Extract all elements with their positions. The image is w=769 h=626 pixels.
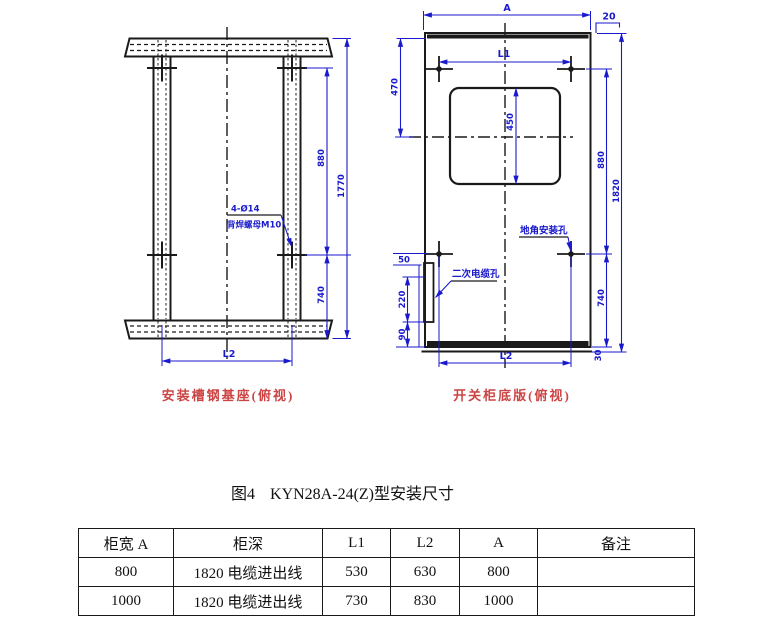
right-drawing-caption: 开关柜底版(俯视) bbox=[453, 388, 571, 403]
left-drawing-caption: 安装槽钢基座(俯视) bbox=[162, 388, 295, 403]
dim-1770: 1770 bbox=[337, 174, 347, 198]
dimension-table: 柜宽 A 柜深 L1 L2 A 备注 800 1820 电缆进出线 530 63… bbox=[78, 528, 695, 616]
dim-470: 470 bbox=[391, 78, 401, 96]
bottom-channel-bar bbox=[125, 321, 332, 339]
dim-A: A bbox=[503, 3, 511, 14]
dim-20: 20 bbox=[602, 12, 616, 23]
cell-remarks-1000 bbox=[538, 587, 695, 616]
figure-caption: 图4KYN28A-24(Z)型安装尺寸 bbox=[231, 480, 454, 504]
dim-L1: L1 bbox=[498, 49, 511, 60]
top-plate-bar bbox=[427, 35, 589, 39]
cell-L1-800: 530 bbox=[323, 558, 391, 587]
figure-number: 图4 bbox=[231, 486, 255, 503]
header-L2: L2 bbox=[391, 529, 460, 558]
cell-depth-800: 1820 电缆进出线 bbox=[174, 558, 323, 587]
dim-50: 50 bbox=[398, 256, 410, 266]
header-A: A bbox=[460, 529, 538, 558]
table-row: 1000 1820 电缆进出线 730 830 1000 bbox=[79, 587, 695, 616]
installation-drawings: 4-Ø14 背焊螺母M10 880 740 1770 L2 安装槽钢基座(俯视) bbox=[0, 0, 769, 470]
top-channel-bar bbox=[125, 39, 332, 57]
callout-hole-spec: 4-Ø14 bbox=[231, 204, 260, 215]
document-page: 4-Ø14 背焊螺母M10 880 740 1770 L2 安装槽钢基座(俯视) bbox=[0, 0, 769, 626]
channel-base-drawing: 4-Ø14 背焊螺母M10 880 740 1770 L2 安装槽钢基座(俯视) bbox=[125, 27, 351, 403]
right-vertical-channel bbox=[284, 40, 301, 337]
anchor-hole-label: 地角安装孔 bbox=[519, 225, 571, 251]
cabinet-outline bbox=[425, 33, 591, 347]
secondary-cable-hole-text: 二次电缆孔 bbox=[452, 268, 500, 280]
cell-A-1000: 1000 bbox=[460, 587, 538, 616]
cell-L2-1000: 830 bbox=[391, 587, 460, 616]
bolt-hole-callout: 4-Ø14 背焊螺母M10 bbox=[227, 204, 292, 247]
header-cabinet-depth: 柜深 bbox=[174, 529, 323, 558]
dim-880-right: 880 bbox=[597, 151, 607, 169]
dim-30: 30 bbox=[594, 350, 604, 362]
cell-width-800: 800 bbox=[79, 558, 174, 587]
left-drawing-dimensions: 880 740 1770 L2 bbox=[162, 39, 351, 367]
callout-nut-spec: 背焊螺母M10 bbox=[227, 220, 281, 231]
cell-depth-1000: 1820 电缆进出线 bbox=[174, 587, 323, 616]
dim-740: 740 bbox=[317, 286, 327, 304]
dim-90: 90 bbox=[398, 329, 408, 341]
cell-width-1000: 1000 bbox=[79, 587, 174, 616]
dim-1820: 1820 bbox=[612, 179, 622, 203]
figure-title: KYN28A-24(Z)型安装尺寸 bbox=[270, 486, 454, 503]
dim-L2-right: L2 bbox=[500, 351, 513, 362]
table-row: 800 1820 电缆进出线 530 630 800 bbox=[79, 558, 695, 587]
header-L1: L1 bbox=[323, 529, 391, 558]
cell-L1-1000: 730 bbox=[323, 587, 391, 616]
table-header-row: 柜宽 A 柜深 L1 L2 A 备注 bbox=[79, 529, 695, 558]
dim-450: 450 bbox=[506, 113, 516, 131]
anchor-hole-text: 地角安装孔 bbox=[520, 225, 568, 237]
cell-L2-800: 630 bbox=[391, 558, 460, 587]
secondary-cable-hole-label: 二次电缆孔 bbox=[436, 268, 501, 298]
dim-220: 220 bbox=[398, 291, 408, 309]
dim-L2-left: L2 bbox=[223, 349, 236, 360]
dim-880: 880 bbox=[317, 149, 327, 167]
cabinet-bottom-drawing: A 20 L1 470 450 880 740 1820 30 50 220 bbox=[391, 3, 627, 403]
cell-A-800: 800 bbox=[460, 558, 538, 587]
dim-740-right: 740 bbox=[597, 289, 607, 307]
cell-remarks-800 bbox=[538, 558, 695, 587]
header-cabinet-width: 柜宽 A bbox=[79, 529, 174, 558]
left-vertical-channel bbox=[154, 40, 171, 337]
bottom-plate-bar bbox=[427, 341, 589, 346]
header-remarks: 备注 bbox=[538, 529, 695, 558]
